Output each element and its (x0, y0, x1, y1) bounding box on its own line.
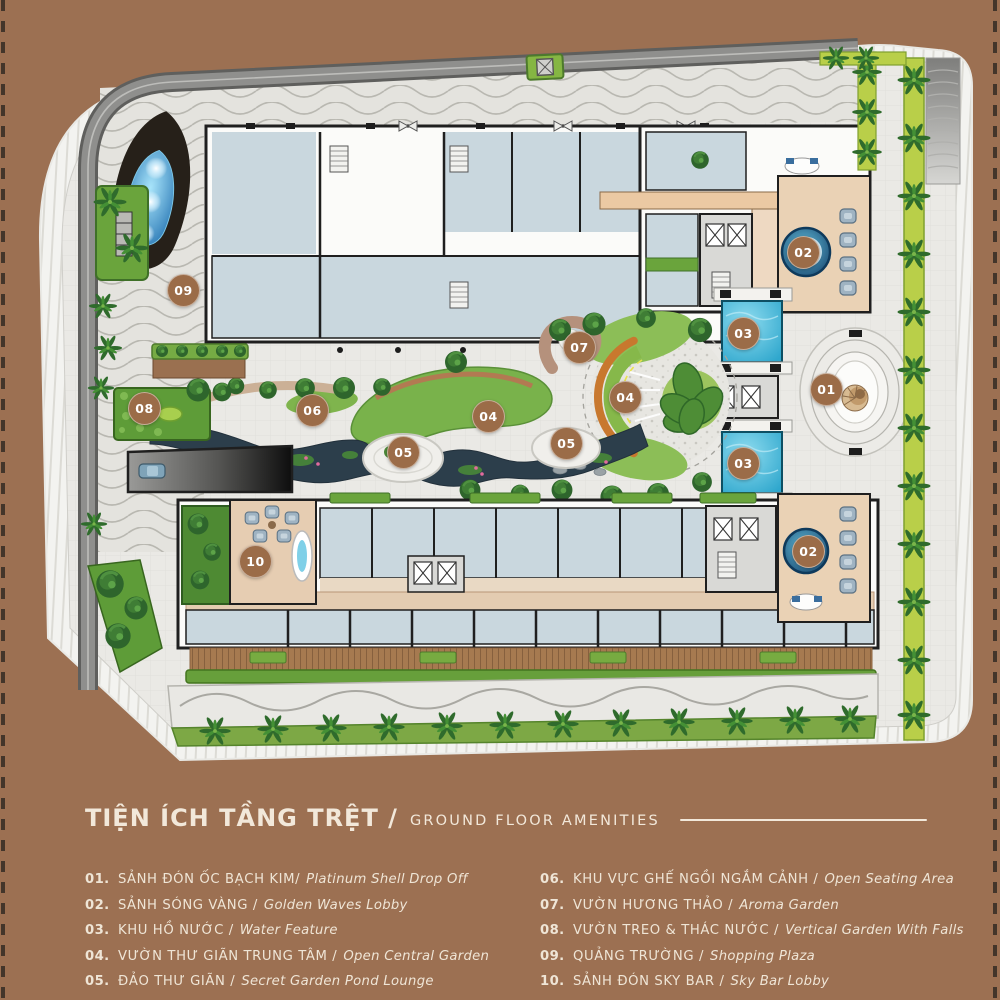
brochure-page: 0908060504050704030301020210 TIỆN ÍCH TẦ… (0, 0, 1000, 1000)
legend-item-02: 02.SẢNH SÓNG VÀNG /Golden Waves Lobby (85, 898, 540, 924)
legend-item-vietnamese: SẢNH ĐÓN ỐC BẠCH KIM/ (118, 872, 300, 887)
legend-item-09: 09.QUẢNG TRƯỜNG /Shopping Plaza (540, 949, 965, 975)
boundary-dash-right (993, 0, 997, 1000)
legend-item-number: 01. (85, 872, 118, 887)
plan-marker-04: 04 (472, 400, 505, 433)
legend-title-en: GROUND FLOOR AMENITIES (410, 813, 660, 829)
legend-title: TIỆN ÍCH TẦNG TRỆT / GROUND FLOOR AMENIT… (85, 804, 927, 832)
legend-item-vietnamese: VƯỜN HƯƠNG THẢO / (573, 898, 733, 913)
legend-item-03: 03.KHU HỒ NƯỚC /Water Feature (85, 923, 540, 949)
legend-item-english: Platinum Shell Drop Off (306, 872, 467, 887)
legend-item-english: Open Seating Area (824, 872, 953, 887)
title-rule-line (680, 819, 927, 821)
legend-item-number: 07. (540, 898, 573, 913)
legend-item-number: 06. (540, 872, 573, 887)
legend-item-10: 10.SẢNH ĐÓN SKY BAR /Sky Bar Lobby (540, 974, 965, 1000)
legend-item-number: 08. (540, 923, 573, 938)
plan-marker-02: 02 (787, 236, 820, 269)
plan-marker-03: 03 (727, 447, 760, 480)
legend-item-english: Secret Garden Pond Lounge (241, 974, 433, 989)
site-plan: 0908060504050704030301020210 (0, 0, 1000, 780)
legend-item-05: 05.ĐẢO THƯ GIÃN /Secret Garden Pond Loun… (85, 974, 540, 1000)
legend-item-vietnamese: VƯỜN THƯ GIÃN TRUNG TÂM / (118, 949, 337, 964)
legend-item-vietnamese: SẢNH ĐÓN SKY BAR / (573, 974, 724, 989)
plan-marker-08: 08 (128, 392, 161, 425)
legend-item-number: 09. (540, 949, 573, 964)
legend-title-vi: TIỆN ÍCH TẦNG TRỆT / (85, 804, 398, 832)
legend-item-english: Water Feature (240, 923, 338, 938)
legend-item-english: Golden Waves Lobby (264, 898, 408, 913)
plan-marker-07: 07 (563, 331, 596, 364)
plan-marker-01: 01 (810, 373, 843, 406)
legend-item-english: Sky Bar Lobby (730, 974, 829, 989)
boundary-dash-left (1, 0, 5, 1000)
legend-item-vietnamese: VƯỜN TREO & THÁC NƯỚC / (573, 923, 779, 938)
legend-item-08: 08.VƯỜN TREO & THÁC NƯỚC /Vertical Garde… (540, 923, 965, 949)
legend-item-number: 05. (85, 974, 118, 989)
plan-marker-06: 06 (296, 394, 329, 427)
legend-column-left: 01.SẢNH ĐÓN ỐC BẠCH KIM/Platinum Shell D… (85, 872, 540, 1000)
legend-item-english: Shopping Plaza (710, 949, 815, 964)
legend-item-04: 04.VƯỜN THƯ GIÃN TRUNG TÂM /Open Central… (85, 949, 540, 975)
plan-marker-04: 04 (609, 381, 642, 414)
site-plan-overlay: 0908060504050704030301020210 (0, 0, 1000, 780)
legend-item-number: 02. (85, 898, 118, 913)
legend-item-english: Open Central Garden (343, 949, 489, 964)
legend-item-vietnamese: KHU VỰC GHẾ NGỒI NGẮM CẢNH / (573, 872, 818, 887)
legend-item-01: 01.SẢNH ĐÓN ỐC BẠCH KIM/Platinum Shell D… (85, 872, 540, 898)
legend-item-07: 07.VƯỜN HƯƠNG THẢO /Aroma Garden (540, 898, 965, 924)
legend-column-right: 06.KHU VỰC GHẾ NGỒI NGẮM CẢNH /Open Seat… (540, 872, 965, 1000)
plan-marker-10: 10 (239, 545, 272, 578)
legend-item-vietnamese: SẢNH SÓNG VÀNG / (118, 898, 258, 913)
legend: 01.SẢNH ĐÓN ỐC BẠCH KIM/Platinum Shell D… (85, 872, 965, 1000)
legend-item-vietnamese: ĐẢO THƯ GIÃN / (118, 974, 235, 989)
legend-item-english: Vertical Garden With Falls (785, 923, 964, 938)
legend-item-number: 04. (85, 949, 118, 964)
legend-item-vietnamese: QUẢNG TRƯỜNG / (573, 949, 704, 964)
plan-marker-05: 05 (387, 436, 420, 469)
legend-item-number: 10. (540, 974, 573, 989)
legend-item-06: 06.KHU VỰC GHẾ NGỒI NGẮM CẢNH /Open Seat… (540, 872, 965, 898)
plan-marker-09: 09 (167, 274, 200, 307)
plan-marker-03: 03 (727, 317, 760, 350)
legend-item-number: 03. (85, 923, 118, 938)
legend-item-english: Aroma Garden (739, 898, 839, 913)
plan-marker-05: 05 (550, 427, 583, 460)
legend-item-vietnamese: KHU HỒ NƯỚC / (118, 923, 234, 938)
plan-marker-02: 02 (792, 535, 825, 568)
